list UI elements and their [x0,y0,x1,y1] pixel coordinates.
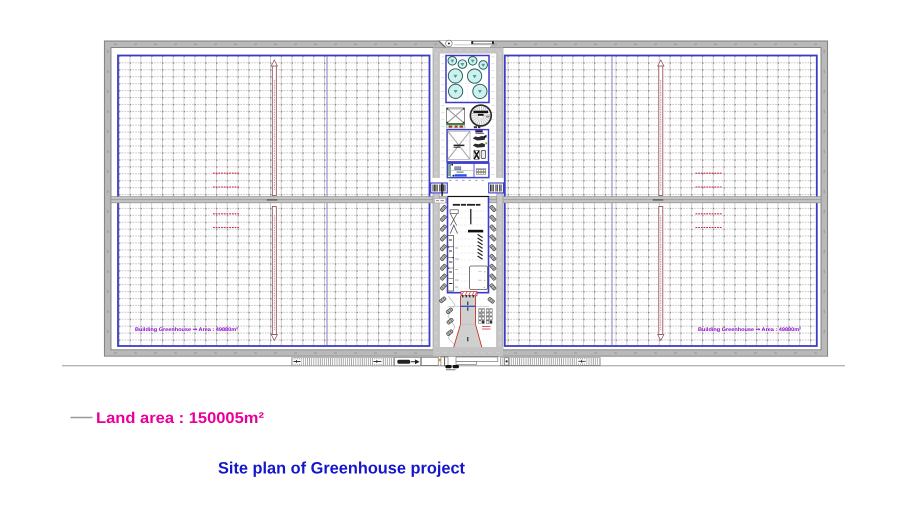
svg-text:Site plan of Greenhouse projec: Site plan of Greenhouse project [218,460,465,478]
svg-text:Building Greenhouse ⇒ Area :: Building Greenhouse ⇒ Area : 49880m² [698,327,801,333]
svg-text:Land area : 150005m²: Land area : 150005m² [96,410,264,427]
svg-text:Building Greenhouse ⇒ Area :: Building Greenhouse ⇒ Area : 49880m² [135,327,238,333]
